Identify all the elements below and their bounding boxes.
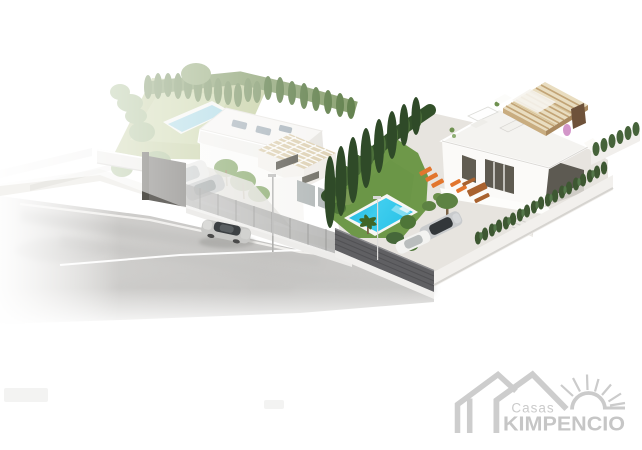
svg-text:KIMPENCIO: KIMPENCIO [503, 413, 625, 436]
